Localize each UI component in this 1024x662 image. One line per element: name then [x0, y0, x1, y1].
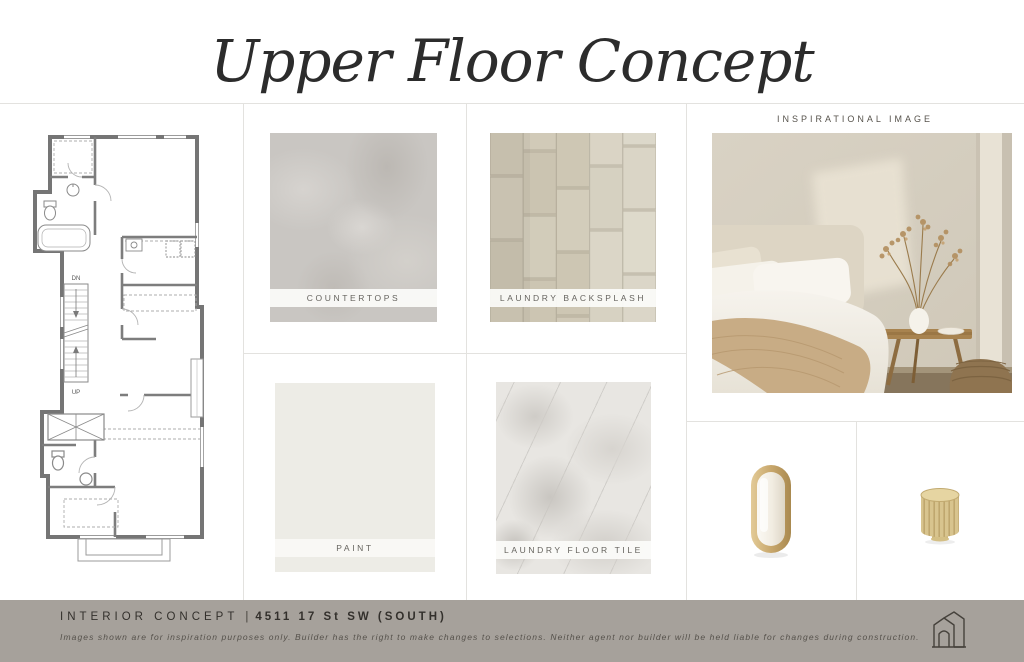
countertops-label: COUNTERTOPS [307, 293, 400, 303]
floor-plan: DN UP [28, 126, 240, 578]
footer-address: 4511 17 St SW (SOUTH) [255, 611, 446, 623]
footer: INTERIOR CONCEPT|4511 17 St SW (SOUTH) I… [0, 600, 1024, 662]
footer-separator: | [238, 611, 255, 623]
exterior-walls [35, 137, 202, 537]
divider-v1 [243, 104, 244, 600]
knob-product [905, 478, 975, 548]
backsplash-label: LAUNDRY BACKSPLASH [500, 293, 646, 303]
curtain-light [980, 133, 1004, 393]
divider-v2 [466, 104, 467, 600]
laundry-backsplash-swatch: LAUNDRY BACKSPLASH [490, 133, 656, 322]
floor-tile-label-band: LAUNDRY FLOOR TILE [496, 541, 651, 559]
stairs: DN UP [64, 276, 88, 396]
stairs-up-label: UP [72, 390, 80, 396]
bed [712, 225, 889, 393]
countertops-label-band: COUNTERTOPS [270, 289, 437, 307]
bedroom-illustration [712, 133, 1012, 393]
builder-logo-icon [930, 609, 968, 651]
divider-h-right [686, 421, 1024, 422]
divider-v3 [686, 104, 687, 600]
divider-v4 [856, 421, 857, 600]
inspirational-image-label: INSPIRATIONAL IMAGE [686, 114, 1024, 124]
fluted-knob-illustration [905, 478, 975, 548]
vase [909, 308, 929, 334]
laundry-fixtures [126, 239, 195, 257]
dish [938, 328, 964, 335]
footer-disclaimer: Images shown are for inspiration purpose… [60, 632, 920, 642]
paint-label: PAINT [336, 543, 373, 553]
inspirational-image [712, 133, 1012, 393]
bathroom-top-fixtures [38, 184, 90, 251]
toilet-icon [45, 206, 56, 220]
page-title: Upper Floor Concept [0, 30, 1024, 94]
project-label: INTERIOR CONCEPT [60, 611, 238, 623]
footer-title: INTERIOR CONCEPT|4511 17 St SW (SOUTH) [60, 611, 447, 623]
laundry-floor-tile-swatch: LAUNDRY FLOOR TILE [496, 382, 651, 574]
floor-plan-svg: DN UP [28, 126, 240, 578]
concept-board: Upper Floor Concept [0, 0, 1024, 662]
porch-outline [78, 539, 170, 561]
sconce-product [741, 461, 801, 561]
stairs-down-label: DN [72, 276, 81, 282]
backsplash-label-band: LAUNDRY BACKSPLASH [490, 289, 656, 307]
countertops-swatch: COUNTERTOPS [270, 133, 437, 322]
paint-swatch: PAINT [275, 383, 435, 572]
divider-top [0, 103, 1024, 104]
divider-h-mid [243, 353, 686, 354]
wall-sconce-illustration [741, 461, 801, 561]
floor-tile-label: LAUNDRY FLOOR TILE [504, 545, 643, 555]
paint-label-band: PAINT [275, 539, 435, 557]
